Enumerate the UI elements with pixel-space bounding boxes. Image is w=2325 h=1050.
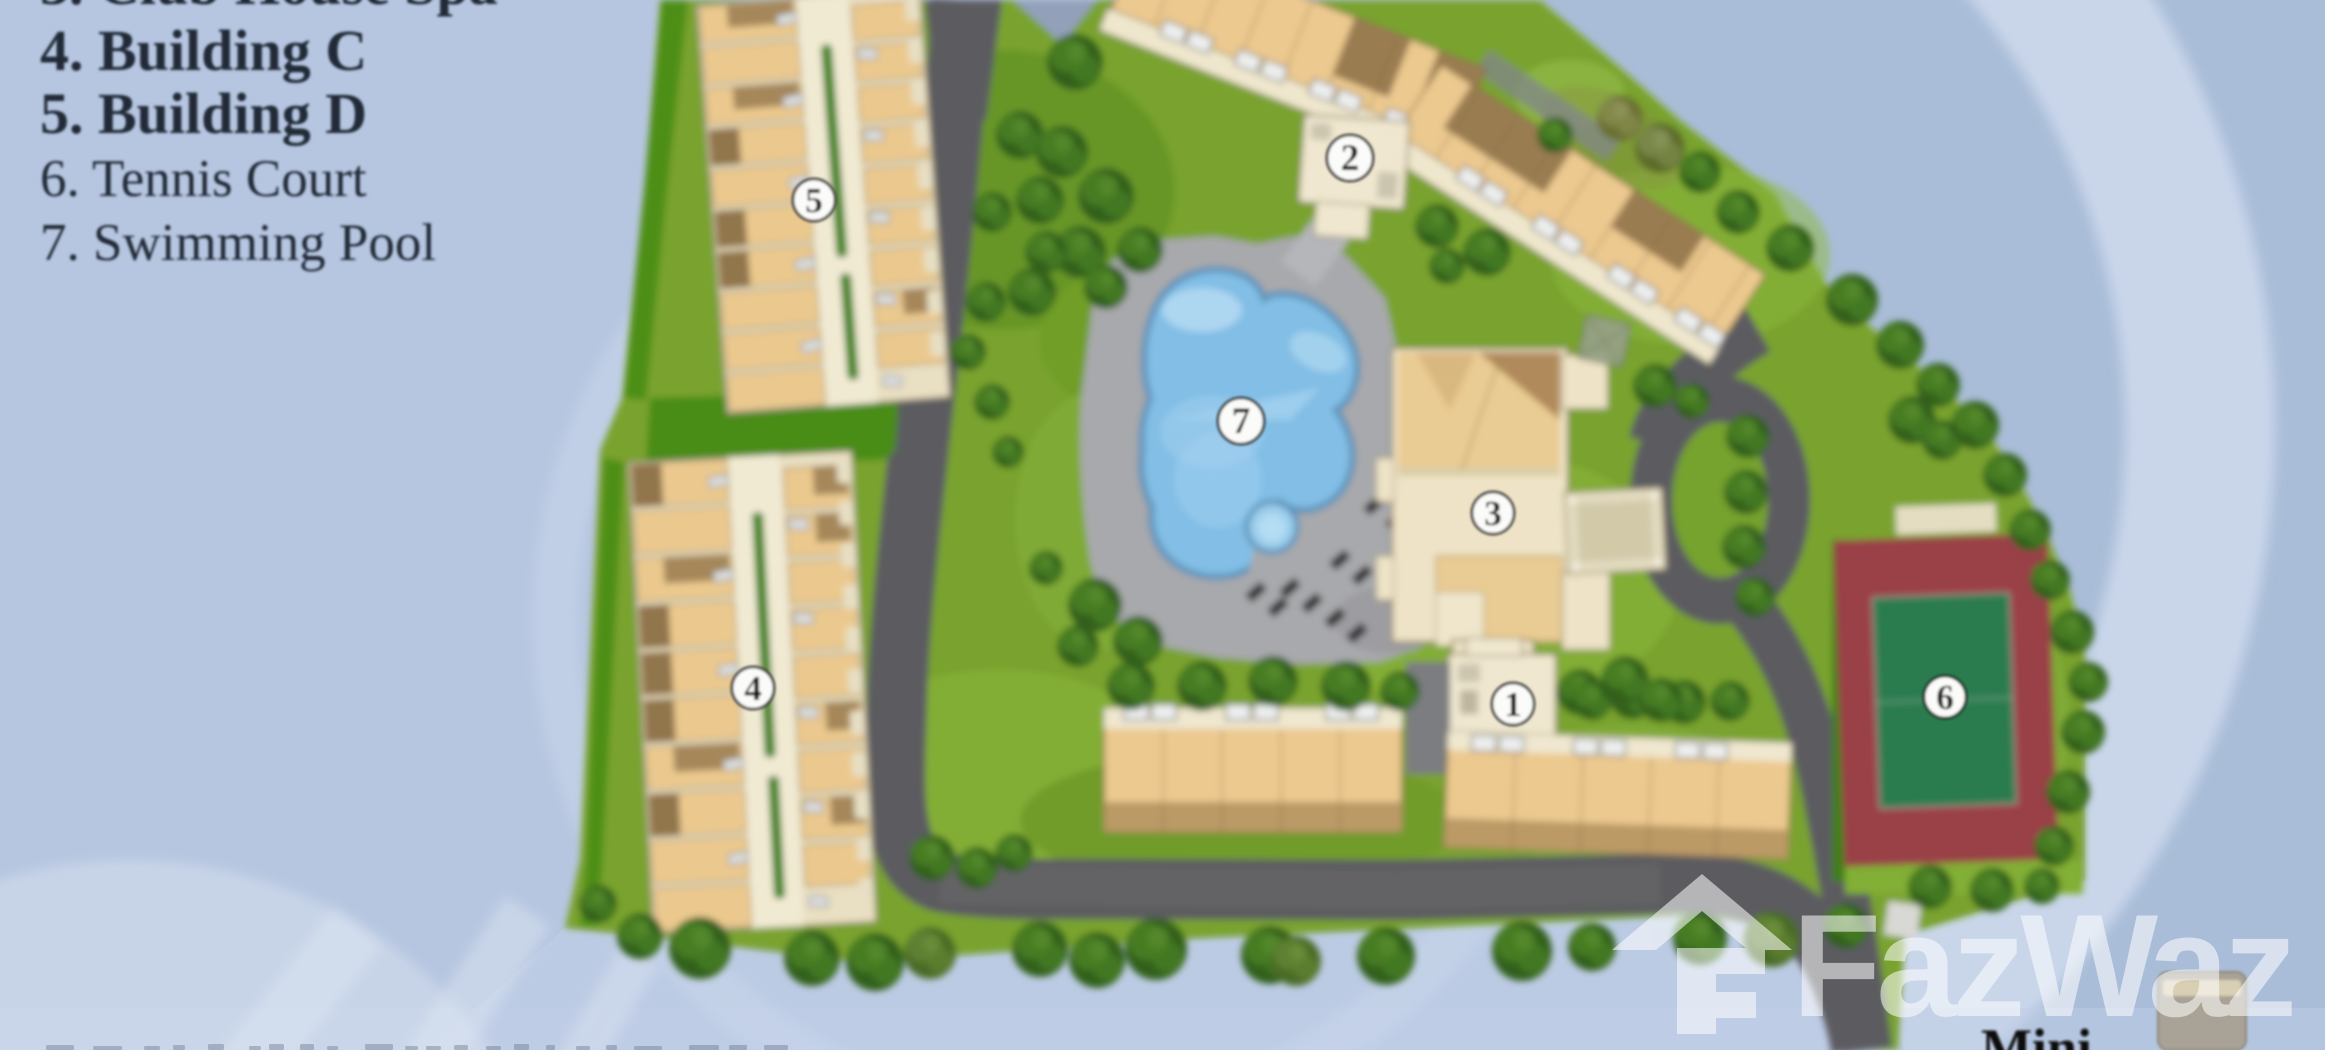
svg-text:5: 5 [805,181,823,220]
svg-text:7: 7 [1232,401,1251,442]
svg-text:3: 3 [1484,494,1502,533]
svg-text:4. Building C: 4. Building C [40,18,367,83]
svg-text:2: 2 [1341,138,1360,179]
svg-text:6. Tennis Court: 6. Tennis Court [40,150,367,208]
svg-text:FazWaz: FazWaz [1792,884,2292,1047]
svg-text:7. Swimming Pool: 7. Swimming Pool [40,214,436,272]
svg-text:5. Building D: 5. Building D [40,81,367,146]
svg-text:6: 6 [1936,678,1954,717]
svg-text:4: 4 [744,669,762,708]
svg-text:1: 1 [1504,685,1522,724]
svg-text:3. Club House Spa: 3. Club House Spa [40,0,498,17]
